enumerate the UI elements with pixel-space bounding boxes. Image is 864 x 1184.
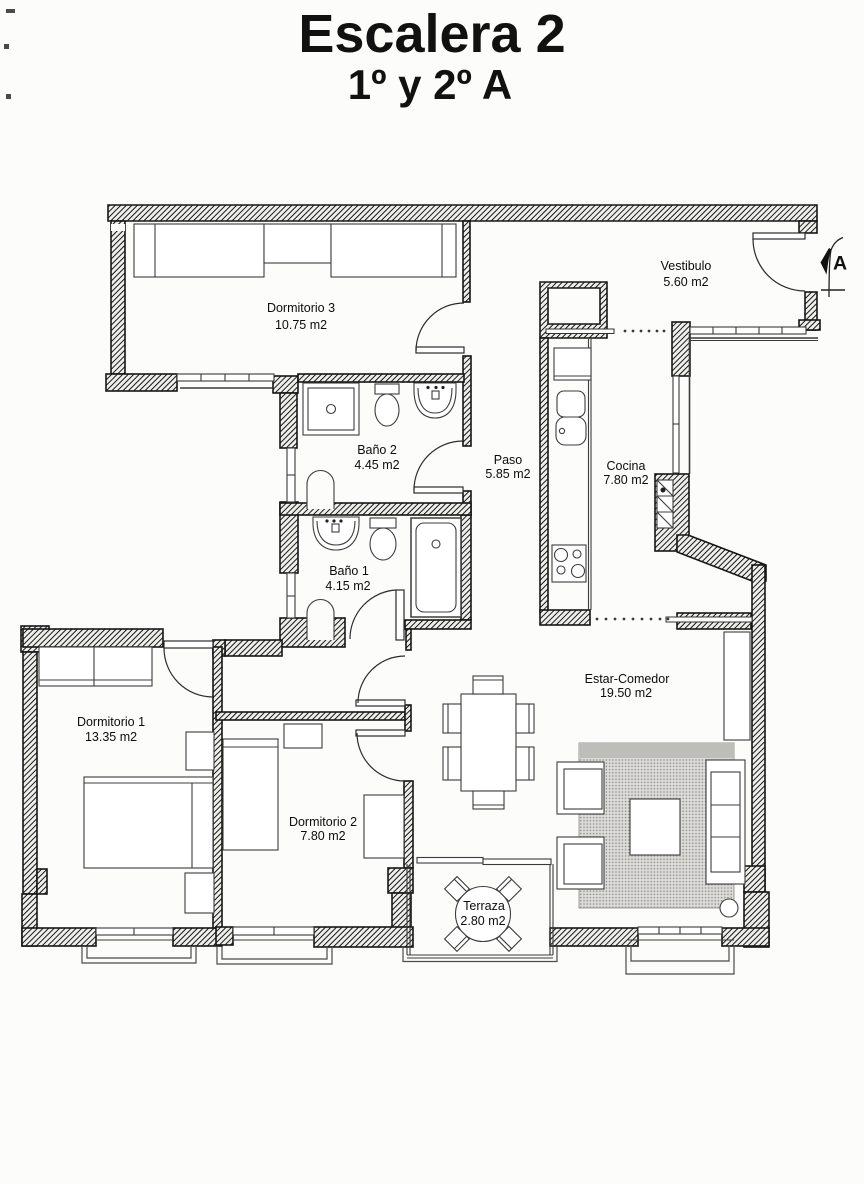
svg-text:Escalera 2: Escalera 2: [298, 4, 565, 64]
svg-text:Dormitorio 1: Dormitorio 1: [77, 715, 145, 729]
svg-text:5.60 m2: 5.60 m2: [663, 275, 708, 289]
svg-text:Dormitorio 2: Dormitorio 2: [289, 815, 357, 829]
svg-text:1º y 2º A: 1º y 2º A: [348, 61, 513, 108]
svg-text:19.50 m2: 19.50 m2: [600, 686, 652, 700]
svg-text:2.80 m2: 2.80 m2: [460, 914, 505, 928]
svg-text:4.15 m2: 4.15 m2: [325, 579, 370, 593]
svg-text:Dormitorio 3: Dormitorio 3: [267, 301, 335, 315]
svg-text:4.45 m2: 4.45 m2: [354, 458, 399, 472]
svg-text:5.85 m2: 5.85 m2: [485, 467, 530, 481]
svg-text:Cocina: Cocina: [607, 459, 646, 473]
svg-text:Paso: Paso: [494, 453, 523, 467]
svg-text:Terraza: Terraza: [463, 899, 505, 913]
svg-text:13.35 m2: 13.35 m2: [85, 730, 137, 744]
svg-text:Baño 2: Baño 2: [357, 443, 397, 457]
svg-text:10.75 m2: 10.75 m2: [275, 318, 327, 332]
svg-text:7.80 m2: 7.80 m2: [603, 473, 648, 487]
svg-text:Estar-Comedor: Estar-Comedor: [585, 672, 670, 686]
svg-text:Baño 1: Baño 1: [329, 564, 369, 578]
svg-text:Vestibulo: Vestibulo: [661, 259, 712, 273]
svg-text:7.80 m2: 7.80 m2: [300, 829, 345, 843]
svg-text:A: A: [833, 253, 847, 275]
